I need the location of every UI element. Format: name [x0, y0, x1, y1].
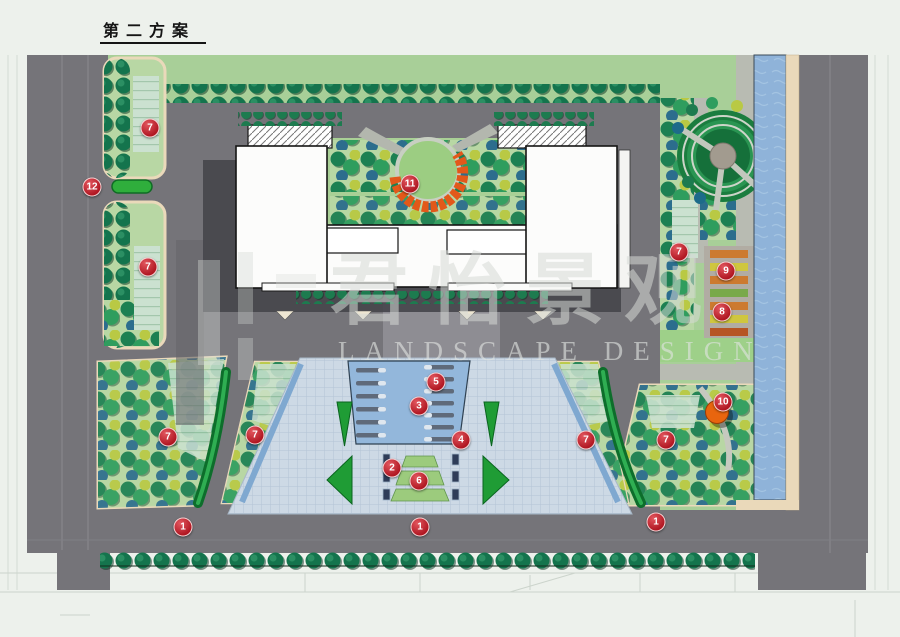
- pavilion-circle: [706, 401, 729, 424]
- east-tower: [526, 146, 617, 288]
- river-boardwalk: [786, 55, 799, 510]
- west-tower: [236, 146, 327, 288]
- north-lawn: [108, 55, 757, 103]
- median-planter: [112, 180, 152, 193]
- site-plan-drawing: [0, 0, 900, 637]
- flower-terraces: [704, 246, 756, 338]
- west-planting-column: [104, 58, 165, 348]
- landscape-plan-page: 第二方案: [0, 0, 900, 637]
- south-tree-row: [100, 551, 755, 571]
